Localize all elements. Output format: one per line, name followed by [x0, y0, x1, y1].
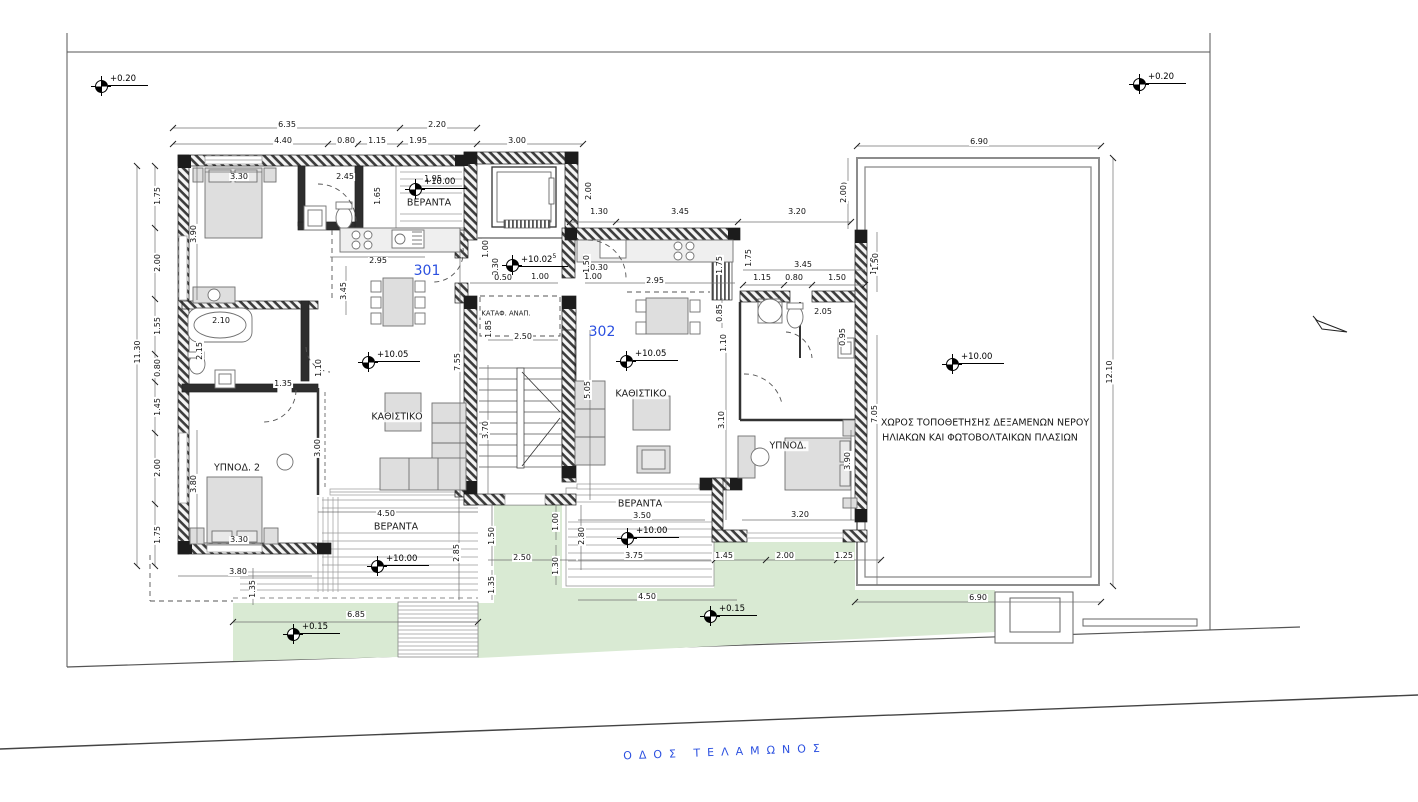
floor-plan-drawing	[0, 0, 1418, 802]
floor-plan-page: ΧΩΡΟΣ ΤΟΠΟΘΕΤΗΣΗΣ ΔΕΞΑΜΕΝΩΝ ΝΕΡΟΥ ΗΛΙΑΚΩ…	[0, 0, 1418, 802]
walls	[178, 152, 867, 554]
roof-terrace	[857, 158, 1099, 585]
north-arrow-icon	[1313, 316, 1347, 332]
utility-box	[995, 592, 1197, 643]
staircase	[479, 368, 562, 468]
